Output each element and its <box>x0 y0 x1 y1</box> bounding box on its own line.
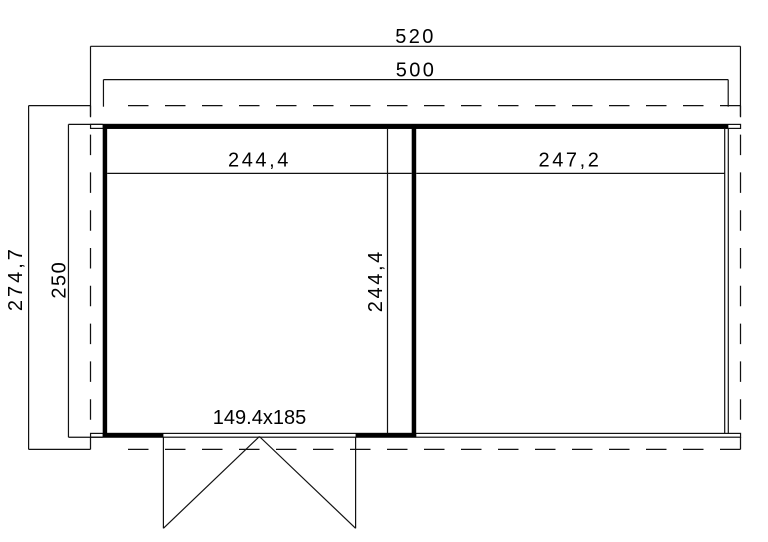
svg-text:520: 520 <box>395 26 436 48</box>
svg-text:244,4: 244,4 <box>228 150 291 172</box>
svg-text:250: 250 <box>49 261 71 299</box>
svg-text:244,4: 244,4 <box>365 249 387 312</box>
svg-text:149.4x185: 149.4x185 <box>213 407 306 429</box>
svg-text:500: 500 <box>396 60 437 82</box>
svg-text:274,7: 274,7 <box>5 246 27 311</box>
svg-text:247,2: 247,2 <box>538 150 601 172</box>
